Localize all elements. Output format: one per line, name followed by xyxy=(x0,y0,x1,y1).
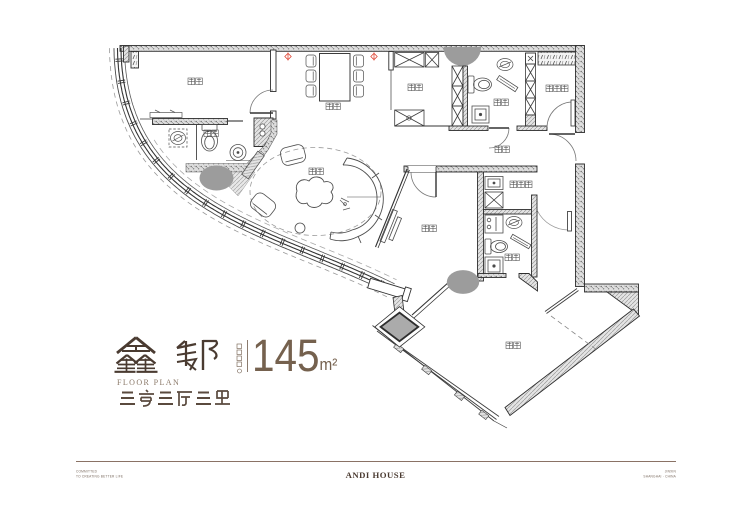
svg-text:TO CREATING BETTER LIFE: TO CREATING BETTER LIFE xyxy=(76,474,123,478)
svg-text:ANDI HOUSE: ANDI HOUSE xyxy=(346,470,406,480)
svg-text:COMMITTED: COMMITTED xyxy=(76,470,98,474)
svg-text:FLOOR PLAN: FLOOR PLAN xyxy=(117,378,180,387)
svg-text:SHANGHAI · CHINA: SHANGHAI · CHINA xyxy=(643,474,676,478)
svg-text:JINXIN: JINXIN xyxy=(665,470,677,474)
